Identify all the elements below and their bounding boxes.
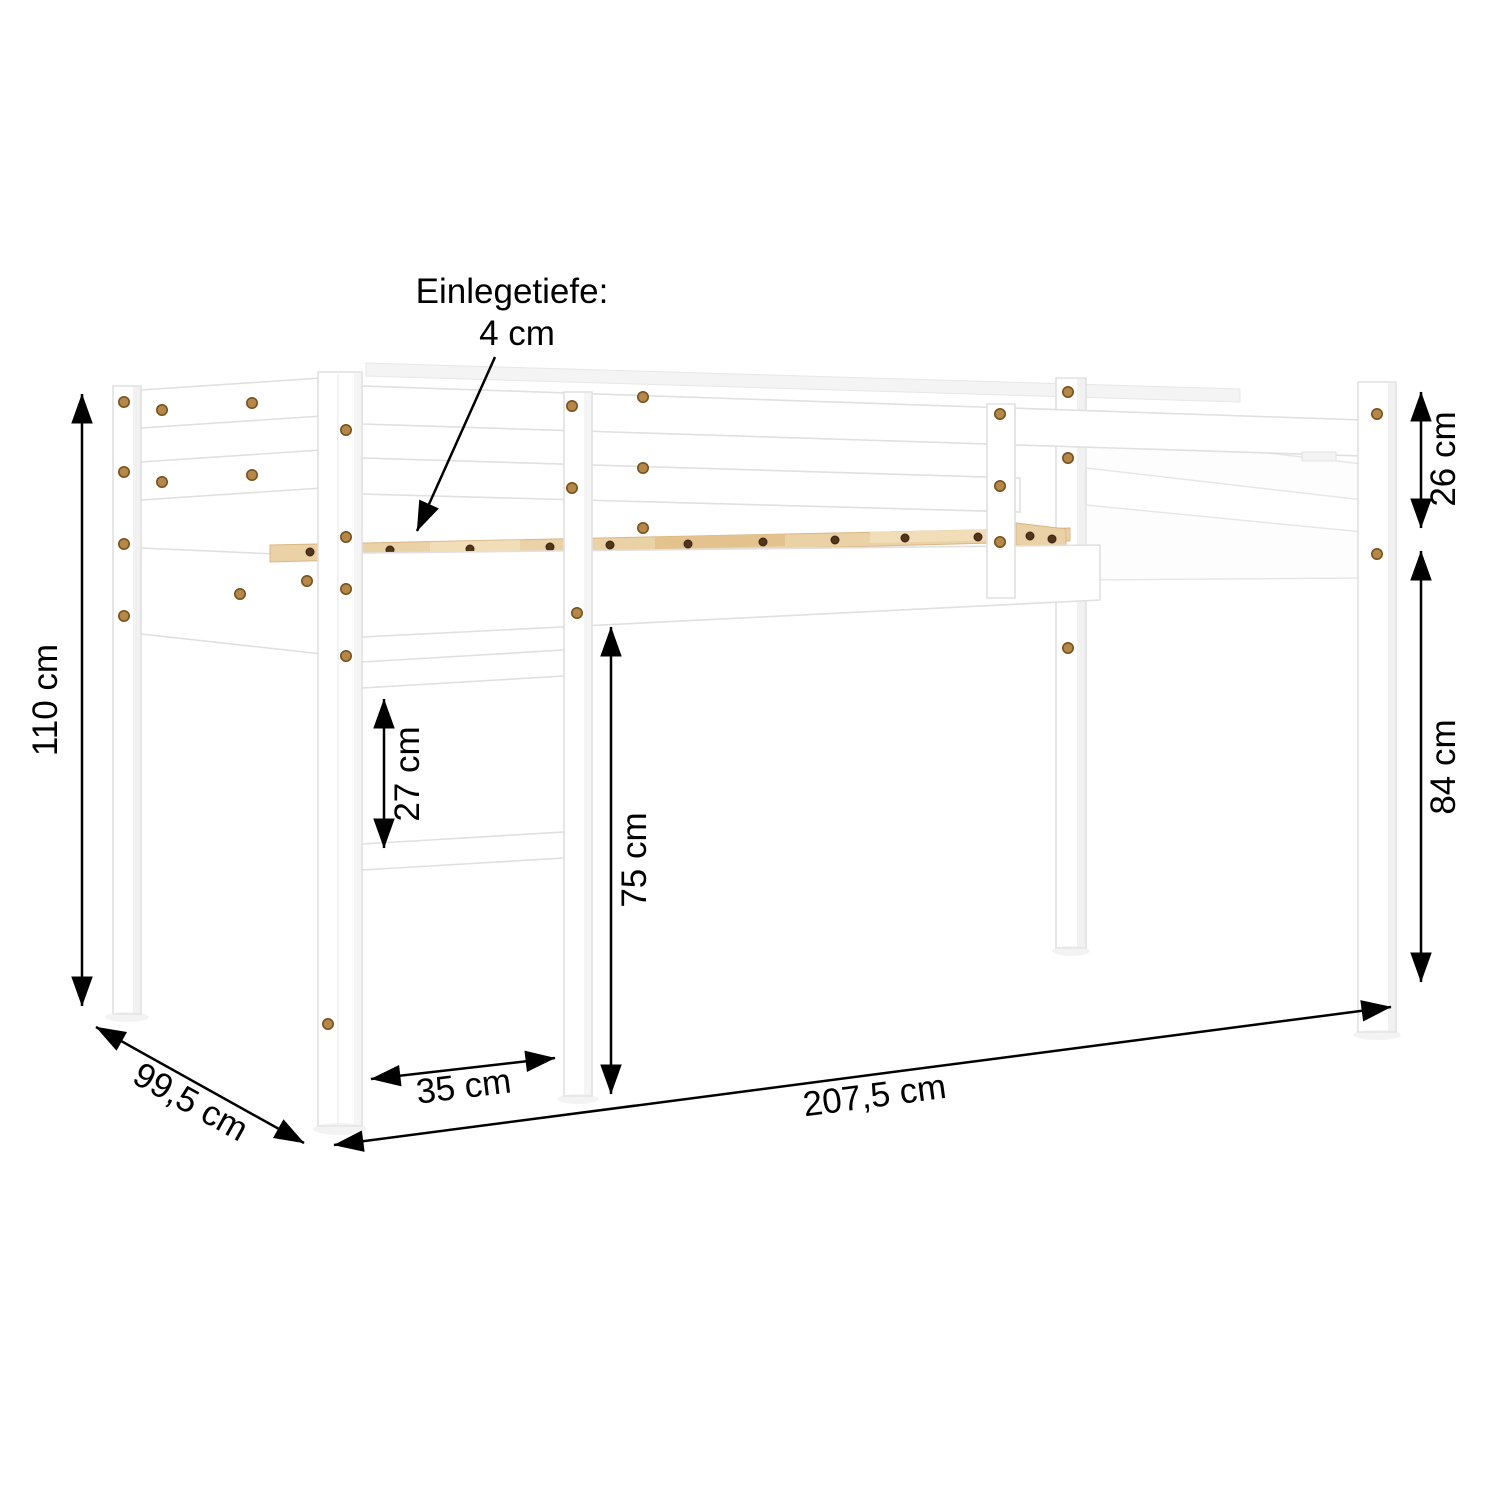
screw [995,481,1005,491]
screw [1026,532,1034,540]
left-end-top-rail [141,378,322,428]
screw [974,533,982,541]
callout-leader-arrow [417,357,495,531]
screw [341,425,351,435]
callout-label-line1: Einlegetiefe: [416,272,609,311]
screw [567,401,577,411]
dimension-label-floor-to-frame: 84 cm [1424,719,1463,814]
dimension-clearance: 75 cm [611,627,654,1094]
screw [119,397,129,407]
ladder-rung-1 [362,650,564,688]
screw [1063,387,1073,397]
dimension-diagram-page: Einlegetiefe: 4 cm 110 cm 99,5 cm 207,5 … [0,0,1500,1500]
dimension-label-guardrail-height: 26 cm [1424,411,1463,506]
left-end-side-board [141,548,322,654]
product-sticker [1302,452,1336,461]
screw [247,398,257,408]
screw [341,584,351,594]
screw [684,540,692,548]
ladder-left-stile [318,372,362,1126]
screw [638,523,648,533]
leg-shadow [1052,946,1090,956]
leg-shadow [313,1123,367,1135]
rear-right-leg [1056,378,1086,948]
leg-shadow [105,1012,149,1022]
dimension-total-height: 110 cm [26,394,82,1006]
screw [1063,643,1073,653]
screw [572,608,582,618]
screw [759,538,767,546]
screw [546,543,554,551]
left-end-panel [113,378,322,1014]
leg-shadow [557,1094,599,1104]
screw [119,539,129,549]
ladder-rung-2 [362,832,564,870]
screw [1372,409,1382,419]
screw [157,405,167,415]
callout-label-line2: 4 cm [479,314,555,353]
screw [995,537,1005,547]
left-end-middle-rail [141,450,322,500]
screw [831,536,839,544]
dimension-label-rung-spacing: 27 cm [388,726,427,821]
screw [901,534,909,542]
dimension-guardrail-height: 26 cm [1421,392,1463,528]
screw [341,532,351,542]
dimension-floor-to-frame: 84 cm [1421,551,1463,982]
screw [119,611,129,621]
screw [567,483,577,493]
front-guardrail-middle-rail [362,458,1020,512]
rear-left-post [113,386,141,1014]
dimension-ladder-width: 35 cm [371,1058,555,1112]
screw [247,470,257,480]
screw [302,576,312,586]
screw [235,589,245,599]
screw [323,1019,333,1029]
dimension-label-clearance: 75 cm [615,812,654,907]
loft-bed-dimension-diagram: Einlegetiefe: 4 cm 110 cm 99,5 cm 207,5 … [0,0,1500,1500]
dimension-label-ladder-width: 35 cm [414,1061,513,1111]
front-right-post [1358,382,1396,1032]
screw [606,541,614,549]
leg-shadow [1353,1030,1401,1040]
ladder-right-stile [564,392,592,1096]
screw [157,477,167,487]
bed-illustration [105,363,1401,1135]
screw [995,409,1005,419]
screw [1048,535,1056,543]
dimension-depth: 99,5 cm [96,1027,304,1149]
guardrail-mid-post [987,404,1015,598]
dimension-rung-spacing: 27 cm [384,699,427,848]
screw [341,651,351,661]
screw [1372,549,1382,559]
screw [119,467,129,477]
dimension-label-depth: 99,5 cm [127,1055,255,1149]
dimension-label-total-height: 110 cm [26,644,65,756]
screw [638,463,648,473]
screw [638,392,648,402]
screw [306,548,314,556]
screw [1063,453,1073,463]
dimension-label-length: 207,5 cm [801,1067,949,1124]
